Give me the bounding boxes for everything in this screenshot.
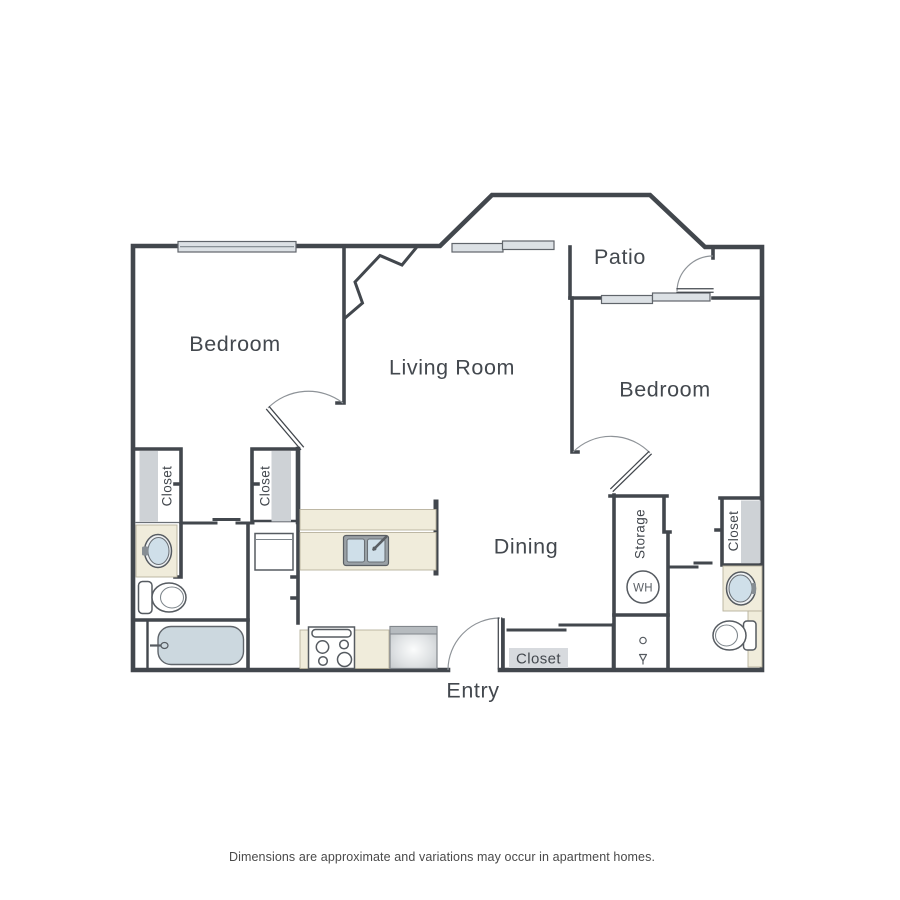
water-heater-label: WH [633, 582, 653, 594]
stove [309, 627, 355, 669]
door-entry [448, 618, 502, 670]
window-living-a [452, 244, 503, 253]
floor-plan-page: WH Bedroom Living Room Patio Bedroom Din… [0, 0, 900, 900]
floor-plan-canvas: WH Bedroom Living Room Patio Bedroom Din… [0, 0, 900, 900]
room-label-living-room: Living Room [389, 356, 515, 380]
disclaimer-caption: Dimensions are approximate and variation… [229, 850, 655, 864]
room-label-entry: Entry [446, 679, 499, 703]
drain-icon [640, 637, 646, 643]
toilet-left [139, 582, 187, 614]
dishwasher [390, 627, 437, 669]
utility-room-fixtures [640, 637, 647, 664]
closet-left-b-label: Closet [258, 466, 273, 507]
room-label-dining: Dining [494, 535, 559, 559]
room-label-bedroom-left: Bedroom [189, 332, 280, 356]
bathroom-right [713, 566, 762, 667]
bathroom-left [136, 525, 244, 665]
kitchen-sink [344, 536, 389, 566]
valve-icon [640, 655, 647, 665]
door-bedroom-left [267, 391, 343, 449]
closet-left-a-label: Closet [160, 466, 175, 507]
storage-label: Storage [633, 509, 648, 559]
room-label-bedroom-right: Bedroom [619, 378, 710, 402]
water-heater: WH [627, 571, 659, 603]
kitchen [255, 510, 437, 669]
refrigerator [255, 534, 293, 571]
closet-right-label: Closet [726, 511, 741, 552]
toilet-right [713, 621, 756, 650]
sink-right [727, 572, 757, 605]
room-label-patio: Patio [594, 245, 646, 269]
window-living-b [503, 241, 555, 250]
island-counter-upper [300, 510, 436, 531]
door-bedroom-right [573, 436, 651, 491]
window-patio-a [602, 296, 653, 304]
bathtub [150, 627, 244, 665]
door-patio [677, 256, 713, 292]
interior-walls [133, 246, 762, 670]
closet-entry-label: Closet [516, 651, 561, 668]
window-patio-b [653, 293, 711, 301]
